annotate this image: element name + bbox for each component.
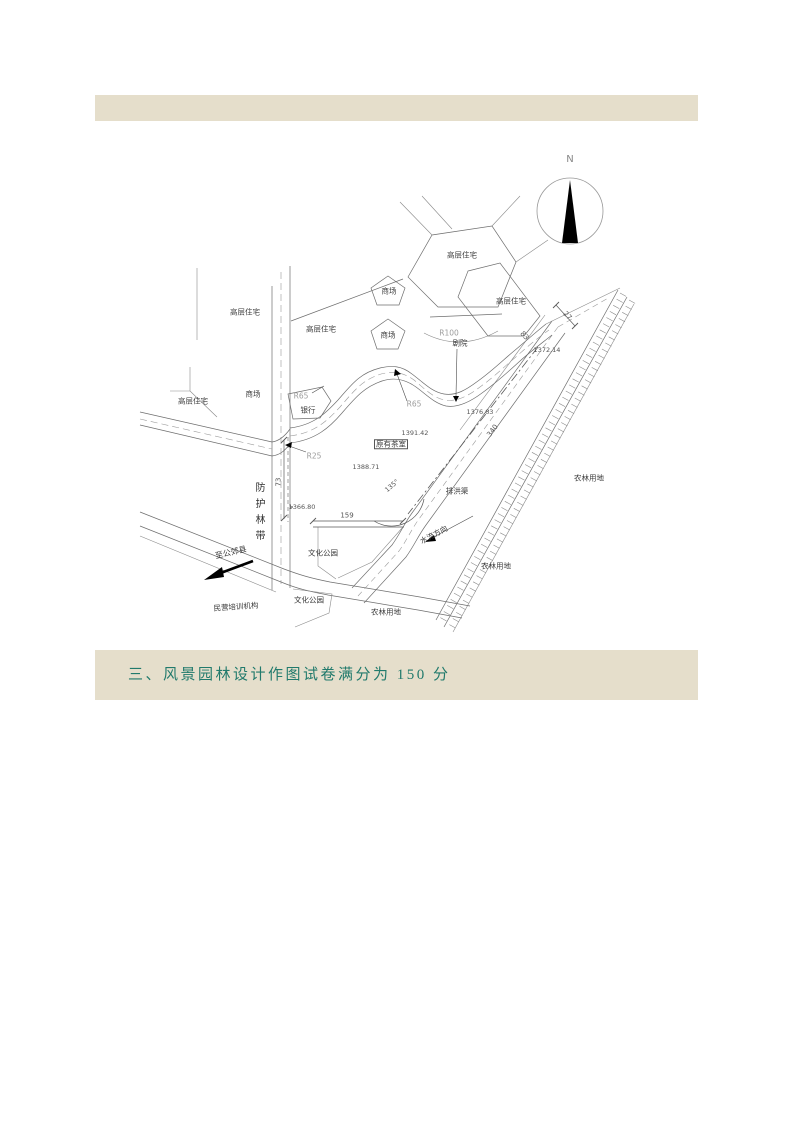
- document-page: { "banner": { "heading": "三、风景园林设计作图试卷满分…: [0, 0, 793, 1122]
- site-plan-linework: [0, 0, 793, 1122]
- label-market-1: 商场: [382, 287, 397, 295]
- north-label: N: [566, 155, 573, 165]
- label-residential-sw: 高层住宅: [178, 397, 208, 405]
- label-farmland-s: 农林用地: [481, 562, 511, 570]
- label-residential-left: 高层住宅: [230, 308, 260, 316]
- label-residential-top: 高层住宅: [447, 251, 477, 259]
- label-radius-r65-road: R65: [407, 400, 422, 408]
- compass-needle-icon: [562, 180, 578, 243]
- label-culture-park-1: 文化公园: [308, 549, 338, 557]
- label-drainage-channel: 排洪渠: [446, 487, 469, 495]
- label-farmland-sw: 农林用地: [371, 608, 401, 616]
- dimension-73: 73: [276, 478, 283, 487]
- elevation-1388: 1388.71: [353, 464, 380, 471]
- site-plan-drawing: N 高层住宅 商场 高层住宅 高层住宅 商场 R100 剧院 高层住宅 商场 高…: [0, 0, 793, 1122]
- label-theater: 剧院: [453, 339, 468, 347]
- dimension-159: 159: [340, 513, 353, 520]
- section-heading: 三、风景园林设计作图试卷满分为 150 分: [95, 650, 698, 684]
- label-residential-ne: 高层住宅: [496, 297, 526, 305]
- label-market-2: 商场: [381, 331, 396, 339]
- label-residential-center: 高层住宅: [306, 325, 336, 333]
- label-tea-house: 原有茶室: [374, 439, 408, 449]
- elevation-1372: 1372.14: [534, 347, 561, 354]
- label-radius-r65-bank: R65: [294, 392, 309, 400]
- label-radius-r100: R100: [439, 329, 459, 337]
- label-radius-r25: R25: [307, 452, 322, 460]
- elevation-1391: 1391.42: [402, 430, 429, 437]
- label-farmland-ne: 农林用地: [574, 474, 604, 482]
- label-culture-park-2: 文化公园: [294, 596, 324, 604]
- section-heading-band: 三、风景园林设计作图试卷满分为 150 分: [95, 650, 698, 700]
- elevation-1366: 1366.80: [289, 504, 316, 511]
- label-bank: 银行: [301, 406, 316, 414]
- label-shelter-belt: 防护林带: [253, 482, 263, 546]
- elevation-1376: 1376.63: [467, 409, 494, 416]
- label-market-3: 商场: [246, 390, 261, 398]
